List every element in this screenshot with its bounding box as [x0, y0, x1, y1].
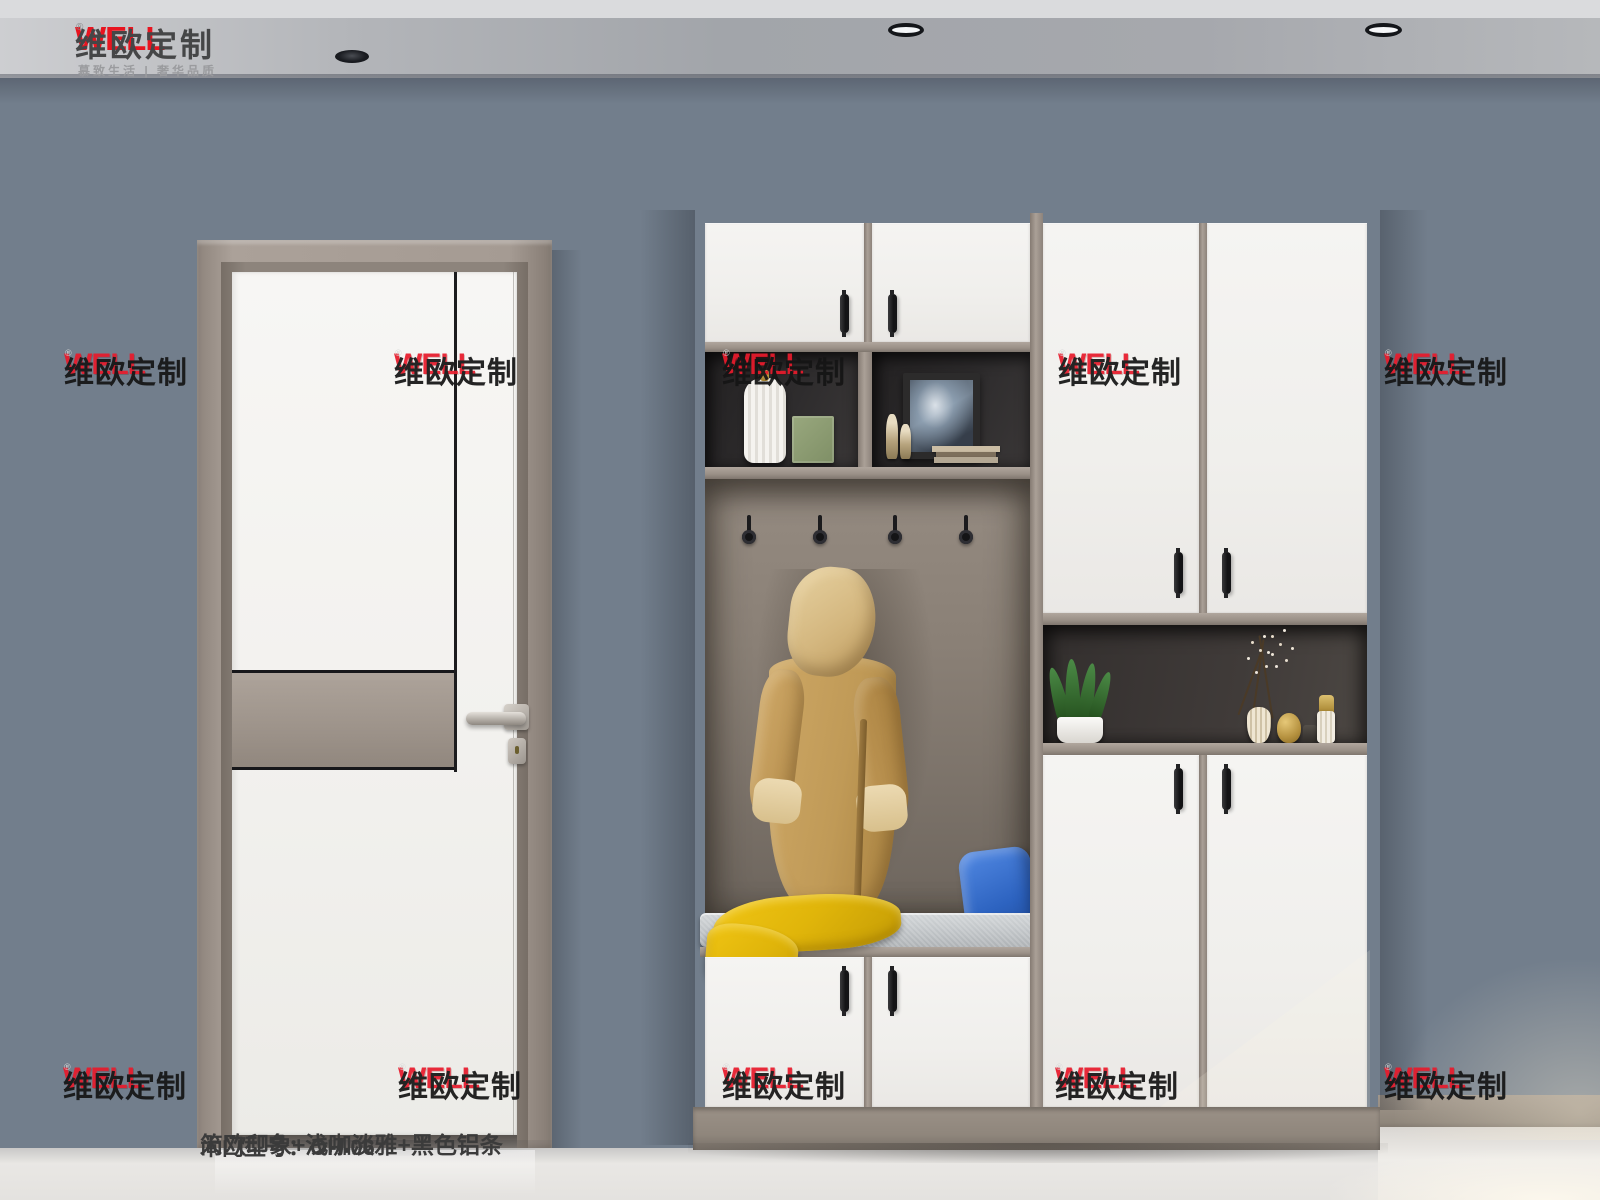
- cabinet-door-handle: [888, 294, 897, 333]
- perfume-bottle: [1317, 711, 1335, 743]
- coat-hook-icon: [742, 530, 756, 544]
- cabinet-door-handle: [888, 970, 897, 1012]
- showroom-scene: WELL®维欧定制 慕致生活 | 奢华品质 WELL®维欧定制 WELL®维欧定…: [0, 0, 1600, 1200]
- watermark-chinese: 维欧定制: [1058, 348, 1182, 392]
- door-lever-handle: [466, 712, 526, 725]
- cabinet-center-stile: [1030, 213, 1043, 1107]
- coat-hook-icon: [813, 530, 827, 544]
- candlestick: [900, 424, 911, 459]
- watermark-chinese: 维欧定制: [1055, 1062, 1179, 1106]
- sunlight-wall-patch: [1395, 960, 1600, 1140]
- cabinet-floor-shadow: [688, 1143, 1388, 1163]
- cabinet-rail: [864, 223, 872, 342]
- watermark-chinese: 维欧定制: [64, 348, 188, 392]
- door-slab: [232, 272, 517, 1135]
- cabinet-door-handle: [1222, 552, 1231, 594]
- cabinet-door-handle: [1174, 768, 1183, 810]
- blossoms: [1275, 665, 1278, 668]
- recessed-downlight-icon: [888, 23, 924, 37]
- gold-ornament: [1277, 713, 1301, 743]
- cabinet-rail: [1199, 755, 1207, 1107]
- plant-pot: [1057, 717, 1103, 743]
- book: [934, 457, 998, 463]
- candlestick: [886, 414, 898, 459]
- abstract-art: [910, 380, 973, 452]
- display-niche: [1043, 625, 1367, 743]
- door-key-escutcheon: [508, 738, 526, 764]
- dry-branch: [1237, 651, 1262, 716]
- watermark-chinese: 维欧定制: [394, 348, 518, 392]
- wardrobe-door-top-right: [1207, 223, 1367, 613]
- niche-board: [1043, 743, 1367, 755]
- cabinet-rail: [1043, 613, 1367, 625]
- coat-hanging-nook: [705, 479, 1030, 913]
- door-black-aluminum-strip: [454, 272, 457, 772]
- watermark-chinese: 维欧定制: [1384, 348, 1508, 392]
- bathrobe-cuff: [751, 777, 803, 826]
- decor-box: [792, 416, 834, 463]
- shelf-divider: [858, 352, 872, 467]
- door-accent-band: [232, 670, 454, 770]
- coat-hook-icon: [888, 530, 902, 544]
- watermark-chinese: 维欧定制: [63, 1062, 187, 1106]
- watermark-chinese: 维欧定制: [398, 1062, 522, 1106]
- cabinet-left-wall-shadow: [640, 210, 695, 1145]
- shelf-board: [705, 467, 1030, 479]
- cabinet-rail: [1199, 223, 1207, 613]
- cabinet-door-handle: [1174, 552, 1183, 594]
- door-wall-shadow: [552, 250, 582, 1148]
- cabinet-rail: [864, 957, 872, 1107]
- watermark-chinese: 维欧定制: [722, 348, 846, 392]
- coat-hook-icon: [959, 530, 973, 544]
- watermark-chinese: 维欧定制: [722, 1062, 846, 1106]
- ceiling-top-band: [0, 0, 1600, 18]
- small-cup: [1303, 725, 1317, 743]
- ribbed-vase: [1247, 707, 1271, 743]
- blossoms: [1255, 671, 1258, 674]
- display-shelf-bay: [872, 352, 1030, 467]
- brand-tagline: 慕致生活 | 奢华品质: [78, 62, 378, 79]
- cabinet-door-handle: [840, 294, 849, 333]
- recessed-downlight-icon: [1365, 23, 1402, 37]
- watermark-chinese: 维欧定制: [1384, 1062, 1508, 1106]
- brand-logo-chinese: 维欧定制: [75, 20, 215, 66]
- caption-model-line: 木门型号：OH-06: [200, 1130, 375, 1162]
- keyhole-icon: [515, 746, 519, 754]
- cabinet-door-handle: [1222, 768, 1231, 810]
- cabinet-door-handle: [840, 970, 849, 1012]
